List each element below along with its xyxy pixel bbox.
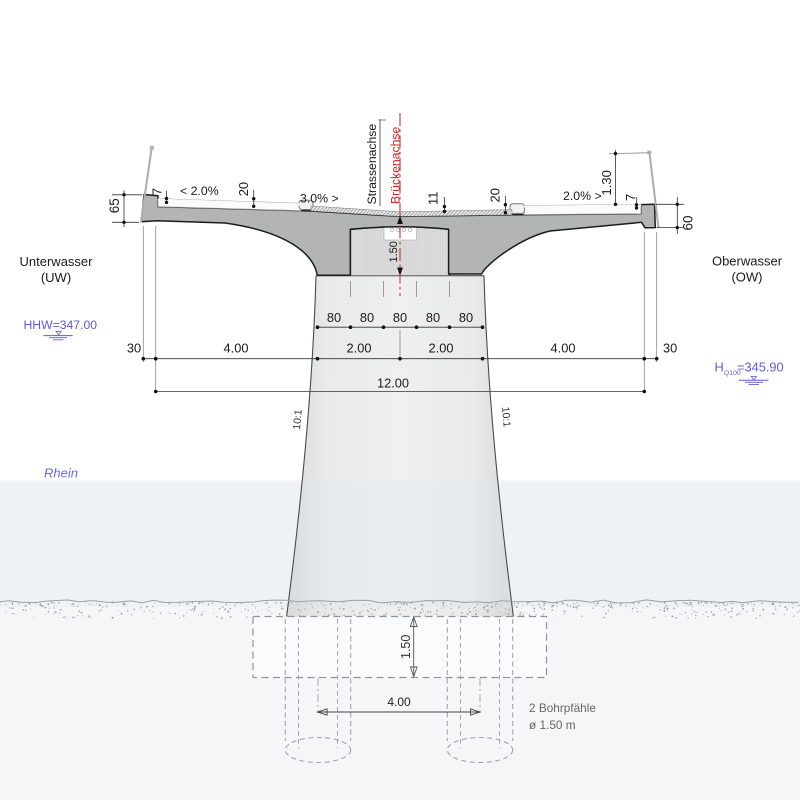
svg-text:80: 80 — [327, 310, 341, 325]
svg-text:2 Bohrpfähle: 2 Bohrpfähle — [529, 701, 596, 715]
svg-text:=345.90: =345.90 — [737, 360, 784, 375]
svg-text:1.50: 1.50 — [388, 241, 400, 262]
svg-text:20: 20 — [488, 188, 503, 202]
svg-text:80: 80 — [360, 310, 374, 325]
svg-text:(UW): (UW) — [41, 270, 71, 285]
svg-text:80: 80 — [459, 310, 473, 325]
svg-text:Oberwasser: Oberwasser — [712, 254, 783, 269]
svg-text:1.30: 1.30 — [599, 170, 614, 195]
svg-text:12.00: 12.00 — [377, 376, 409, 391]
svg-text:Strassenachse: Strassenachse — [365, 124, 379, 205]
svg-text:7: 7 — [150, 188, 165, 195]
svg-text:4.00: 4.00 — [387, 695, 411, 709]
svg-text:3.0% >: 3.0% > — [300, 192, 339, 206]
svg-text:1.50: 1.50 — [399, 635, 413, 659]
svg-text:80: 80 — [393, 310, 407, 325]
svg-text:7: 7 — [623, 194, 638, 201]
svg-text:30: 30 — [663, 340, 677, 355]
svg-text:Rhein: Rhein — [44, 466, 78, 481]
svg-text:30: 30 — [127, 340, 141, 355]
svg-text:(OW): (OW) — [731, 270, 762, 285]
svg-text:4.00: 4.00 — [224, 340, 249, 355]
svg-text:4.00: 4.00 — [551, 340, 576, 355]
svg-text:2.00: 2.00 — [347, 340, 372, 355]
svg-text:HHW=347.00: HHW=347.00 — [24, 318, 98, 332]
svg-text:ø 1.50 m: ø 1.50 m — [529, 718, 576, 732]
svg-text:Unterwasser: Unterwasser — [20, 254, 94, 269]
svg-text:2.0% >: 2.0% > — [563, 189, 602, 203]
svg-text:H: H — [715, 360, 724, 375]
svg-text:60: 60 — [681, 215, 696, 230]
svg-text:Brückenachse: Brückenachse — [389, 127, 403, 204]
svg-text:65: 65 — [107, 198, 122, 213]
svg-text:< 2.0%: < 2.0% — [180, 184, 219, 198]
svg-text:10:1: 10:1 — [499, 406, 513, 428]
svg-text:2.00: 2.00 — [429, 340, 454, 355]
svg-text:80: 80 — [426, 310, 440, 325]
svg-text:10:1: 10:1 — [291, 409, 305, 431]
svg-text:11: 11 — [426, 192, 441, 206]
svg-text:20: 20 — [236, 182, 251, 196]
